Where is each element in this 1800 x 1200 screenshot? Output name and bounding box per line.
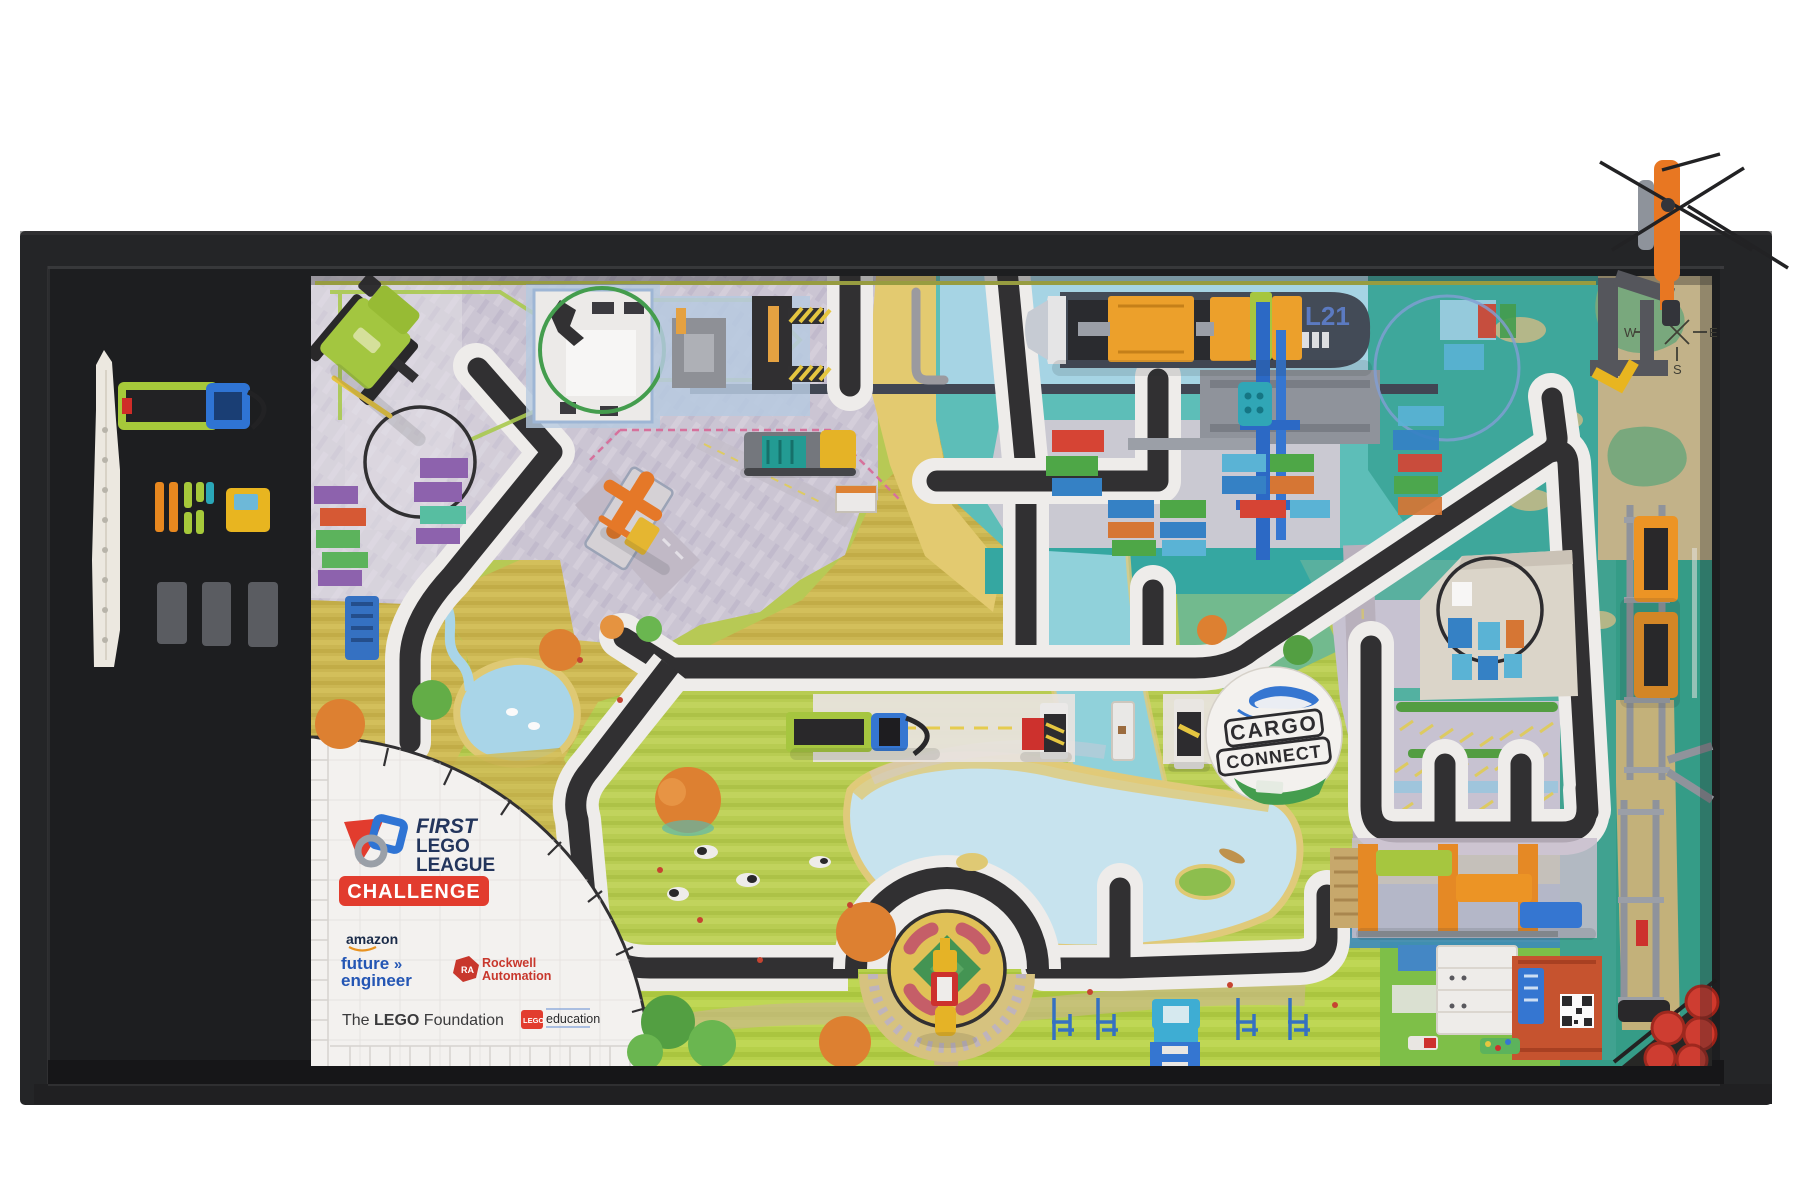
svg-text:FIRST: FIRST (416, 815, 479, 838)
svg-text:amazon: amazon (346, 931, 398, 947)
svg-text:Automation: Automation (482, 969, 551, 983)
svg-text:education: education (546, 1012, 600, 1026)
svg-text:RA: RA (461, 965, 474, 975)
svg-text:CHALLENGE: CHALLENGE (347, 881, 480, 903)
svg-text:LEGO: LEGO (523, 1016, 544, 1025)
svg-text:The LEGO Foundation: The LEGO Foundation (342, 1012, 504, 1029)
svg-text:Rockwell: Rockwell (482, 956, 536, 970)
svg-text:LEGO: LEGO (416, 836, 470, 857)
svg-text:engineer: engineer (341, 971, 412, 990)
svg-text:LEAGUE: LEAGUE (416, 855, 495, 876)
